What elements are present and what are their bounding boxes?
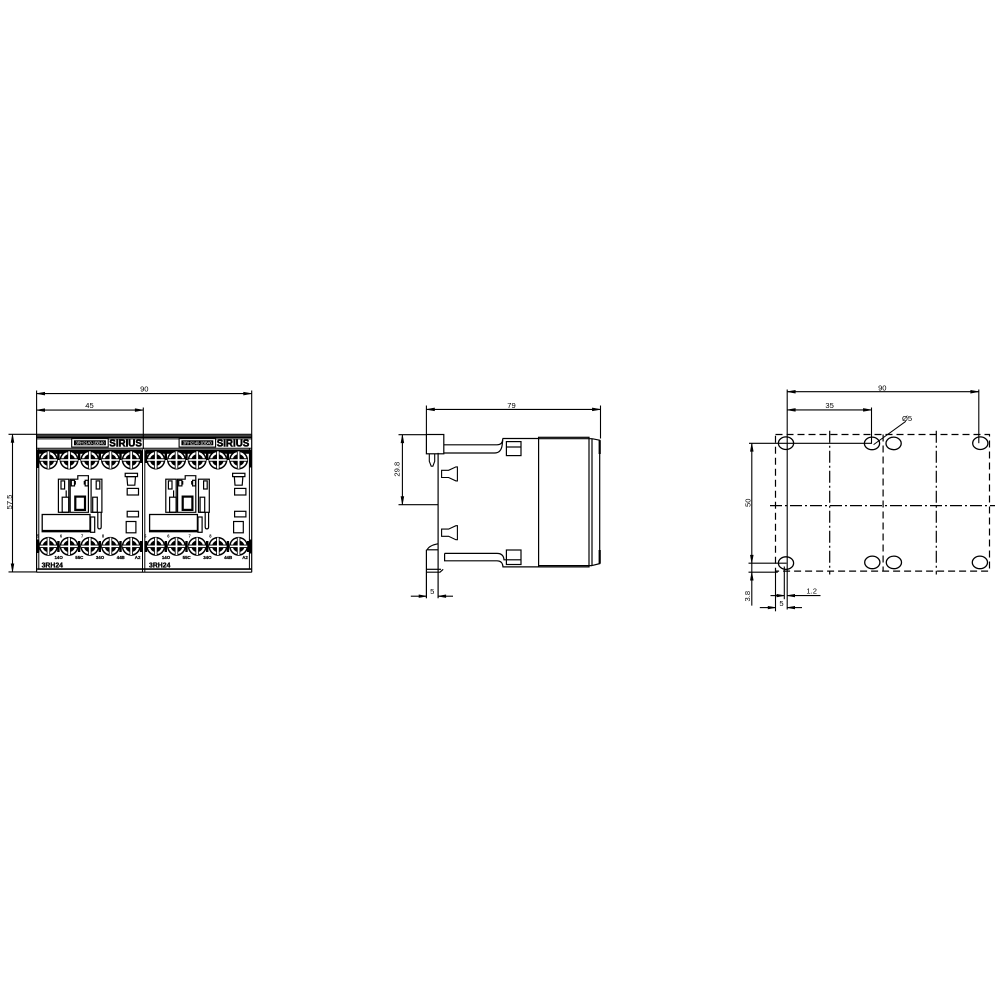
svg-text:5: 5 — [430, 587, 434, 596]
svg-text:90: 90 — [878, 384, 886, 393]
svg-text:55C: 55C — [75, 555, 84, 560]
svg-text:3RH24: 3RH24 — [42, 562, 63, 569]
svg-text:29.8: 29.8 — [392, 462, 401, 477]
svg-text:1.2: 1.2 — [806, 586, 817, 595]
svg-text:A2: A2 — [242, 555, 248, 560]
svg-text:34O: 34O — [203, 555, 212, 560]
svg-text:A2: A2 — [135, 555, 141, 560]
svg-text:57.5: 57.5 — [5, 495, 14, 510]
svg-text:SIRIUS: SIRIUS — [217, 439, 250, 450]
svg-text:50: 50 — [743, 499, 752, 507]
svg-text:55C: 55C — [183, 555, 192, 560]
svg-text:5: 5 — [779, 599, 783, 608]
svg-text:14O: 14O — [162, 555, 171, 560]
svg-text:35: 35 — [825, 401, 833, 410]
svg-text:SIRIUS: SIRIUS — [109, 439, 142, 450]
svg-text:3RH24: 3RH24 — [149, 562, 170, 569]
svg-text:90: 90 — [140, 384, 148, 393]
svg-text:44B: 44B — [117, 555, 125, 560]
svg-text:45: 45 — [85, 401, 93, 410]
svg-text:3RH2140-1BB40: 3RH2140-1BB40 — [183, 441, 213, 446]
svg-text:14O: 14O — [54, 555, 63, 560]
svg-text:3.8: 3.8 — [743, 591, 752, 602]
svg-text:34O: 34O — [96, 555, 105, 560]
svg-text:3RH2140-1BB40: 3RH2140-1BB40 — [76, 441, 106, 446]
svg-text:79: 79 — [507, 401, 515, 410]
svg-text:44B: 44B — [224, 555, 232, 560]
svg-text:Ø5: Ø5 — [902, 414, 912, 423]
